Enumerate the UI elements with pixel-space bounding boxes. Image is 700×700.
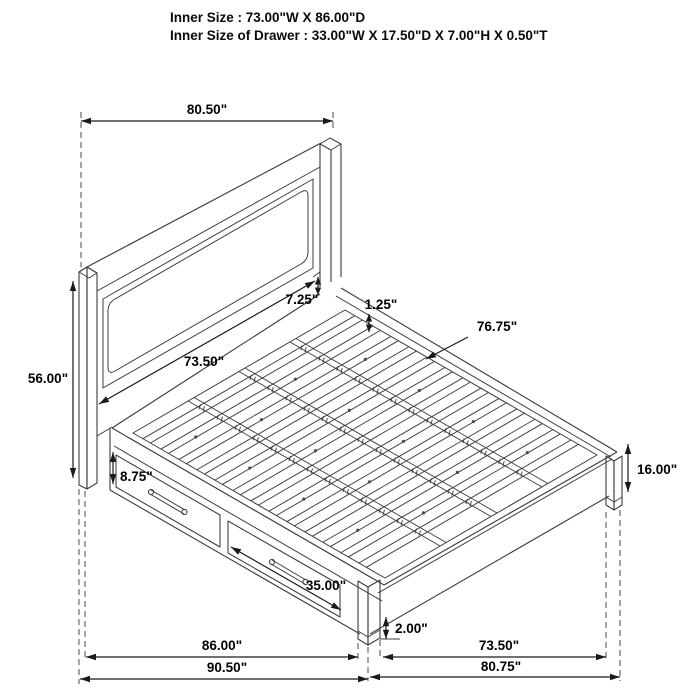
arrowhead: [383, 617, 389, 626]
dimension-headboard-height: 56.00": [28, 281, 76, 478]
screw-hole-dot: [368, 480, 371, 483]
screw-hole-dot: [194, 435, 197, 438]
post-left-face: [358, 581, 368, 645]
left-post-cap: [79, 267, 97, 278]
arrowhead: [348, 654, 358, 660]
screw-hole-dot: [402, 440, 405, 443]
dimension-label-slat-thickness: 1.25": [365, 297, 398, 312]
arrowhead: [86, 654, 96, 660]
foot-face-bottom-edge: [370, 496, 609, 634]
screw-hole-dot: [356, 529, 359, 532]
screw-hole-dot: [422, 511, 425, 514]
foot-rail-edge: [384, 452, 617, 585]
inner-panel: [108, 191, 308, 373]
line: [99, 281, 315, 404]
drawer-front: [228, 521, 340, 617]
dimension-label-floor-clearance: 2.00": [395, 621, 428, 636]
arrowhead: [366, 324, 372, 332]
right-corner-post: [606, 456, 622, 510]
arrowhead: [80, 676, 90, 682]
dimension-headboard-panel-width: 73.50": [99, 281, 315, 404]
arrowhead: [358, 676, 368, 682]
extension-lines: [79, 112, 620, 684]
dimension-foot-inner-width: 73.50": [383, 638, 606, 660]
arrowhead: [331, 602, 341, 610]
post-right-face: [614, 456, 622, 510]
dimension-label-overall-foot-width: 80.75": [481, 659, 521, 674]
dimension-overall-depth: 90.50": [80, 660, 368, 682]
screw-hole-dot: [314, 449, 317, 452]
dimension-drawer-front-width: 35.00": [231, 547, 346, 610]
dimension-floor-clearance: 2.00": [383, 617, 428, 639]
arrowhead: [426, 352, 436, 359]
arrowhead: [370, 674, 380, 680]
arrowhead: [305, 281, 315, 289]
dimension-headboard-rail-gap: 7.25": [286, 277, 322, 307]
left-post-front: [79, 267, 87, 489]
screw-hole-dot: [472, 420, 475, 423]
arrowhead: [70, 468, 76, 478]
storage-drawer-2: [228, 521, 340, 617]
dimension-side-rail-length: 86.00": [86, 638, 358, 660]
dimension-label-headboard-panel-width: 73.50": [184, 354, 224, 369]
bed-dimension-diagram-page: Inner Size : 73.00"W X 86.00"D Inner Siz…: [0, 0, 700, 700]
arrowhead: [383, 654, 393, 660]
screw-hole-dot: [294, 378, 297, 381]
bed-isometric-drawing: 80.50"56.00"7.25"1.25"76.75"73.50"8.75"3…: [0, 0, 700, 700]
left-post-side: [87, 267, 97, 489]
foot-corner-post: [358, 580, 380, 645]
arrowhead: [81, 118, 91, 124]
arrowhead: [231, 547, 241, 555]
arrowhead: [383, 630, 389, 639]
line: [150, 494, 184, 514]
screw-hole-dot: [418, 389, 421, 392]
arrowhead: [110, 474, 116, 484]
screw-hole-dot: [302, 498, 305, 501]
bottom-rail-edge-right: [313, 272, 320, 277]
arrowhead: [70, 281, 76, 291]
dimension-label-drawer-front-width: 35.00": [306, 578, 346, 593]
right-rail-edge: [341, 288, 617, 452]
top-rail-edge: [87, 143, 321, 267]
dimension-label-overall-depth: 90.50": [207, 660, 247, 675]
dimension-label-side-rail-length: 86.00": [202, 638, 242, 653]
arrowhead: [625, 444, 631, 454]
dimension-footboard-height: 16.00": [625, 444, 677, 492]
arrowhead: [625, 482, 631, 492]
arrowhead: [366, 314, 372, 322]
foot-face-band: [378, 459, 612, 593]
screw-hole-dot: [260, 418, 263, 421]
dimension-overall-foot-width: 80.75": [370, 659, 620, 680]
post-left-face: [606, 456, 614, 510]
screw-hole-dot: [526, 451, 529, 454]
dimension-label-footboard-height: 16.00": [637, 462, 677, 477]
headboard: [79, 138, 341, 489]
arrowhead: [110, 452, 116, 462]
dimension-label-drawer-front-height: 8.75": [120, 469, 153, 484]
right-post-cap: [320, 138, 341, 150]
screw-hole-dot: [348, 409, 351, 412]
dimension-slat-thickness: 1.25": [365, 297, 398, 332]
left-rail-edge: [112, 428, 384, 585]
dimension-label-slat-deck-length: 76.75": [477, 319, 517, 334]
dimension-slat-deck-length: 76.75": [426, 319, 517, 359]
dimension-label-headboard-width: 80.50": [187, 102, 227, 117]
arrowhead: [610, 674, 620, 680]
post-foot-step: [358, 630, 380, 637]
screw-hole-dot: [364, 358, 367, 361]
arrowhead: [596, 654, 606, 660]
screw-hole-dot: [248, 466, 251, 469]
arrowhead: [99, 396, 109, 404]
dimension-label-headboard-height: 56.00": [28, 371, 68, 386]
dimension-label-foot-inner-width: 73.50": [479, 638, 519, 653]
arrowhead: [323, 118, 333, 124]
dimension-headboard-width: 80.50": [81, 102, 333, 124]
screw-hole-dot: [456, 471, 459, 474]
post-right-face: [368, 580, 380, 645]
right-rail-band: [336, 296, 611, 457]
line: [151, 490, 185, 510]
side-face-bottom-edge: [110, 490, 360, 634]
